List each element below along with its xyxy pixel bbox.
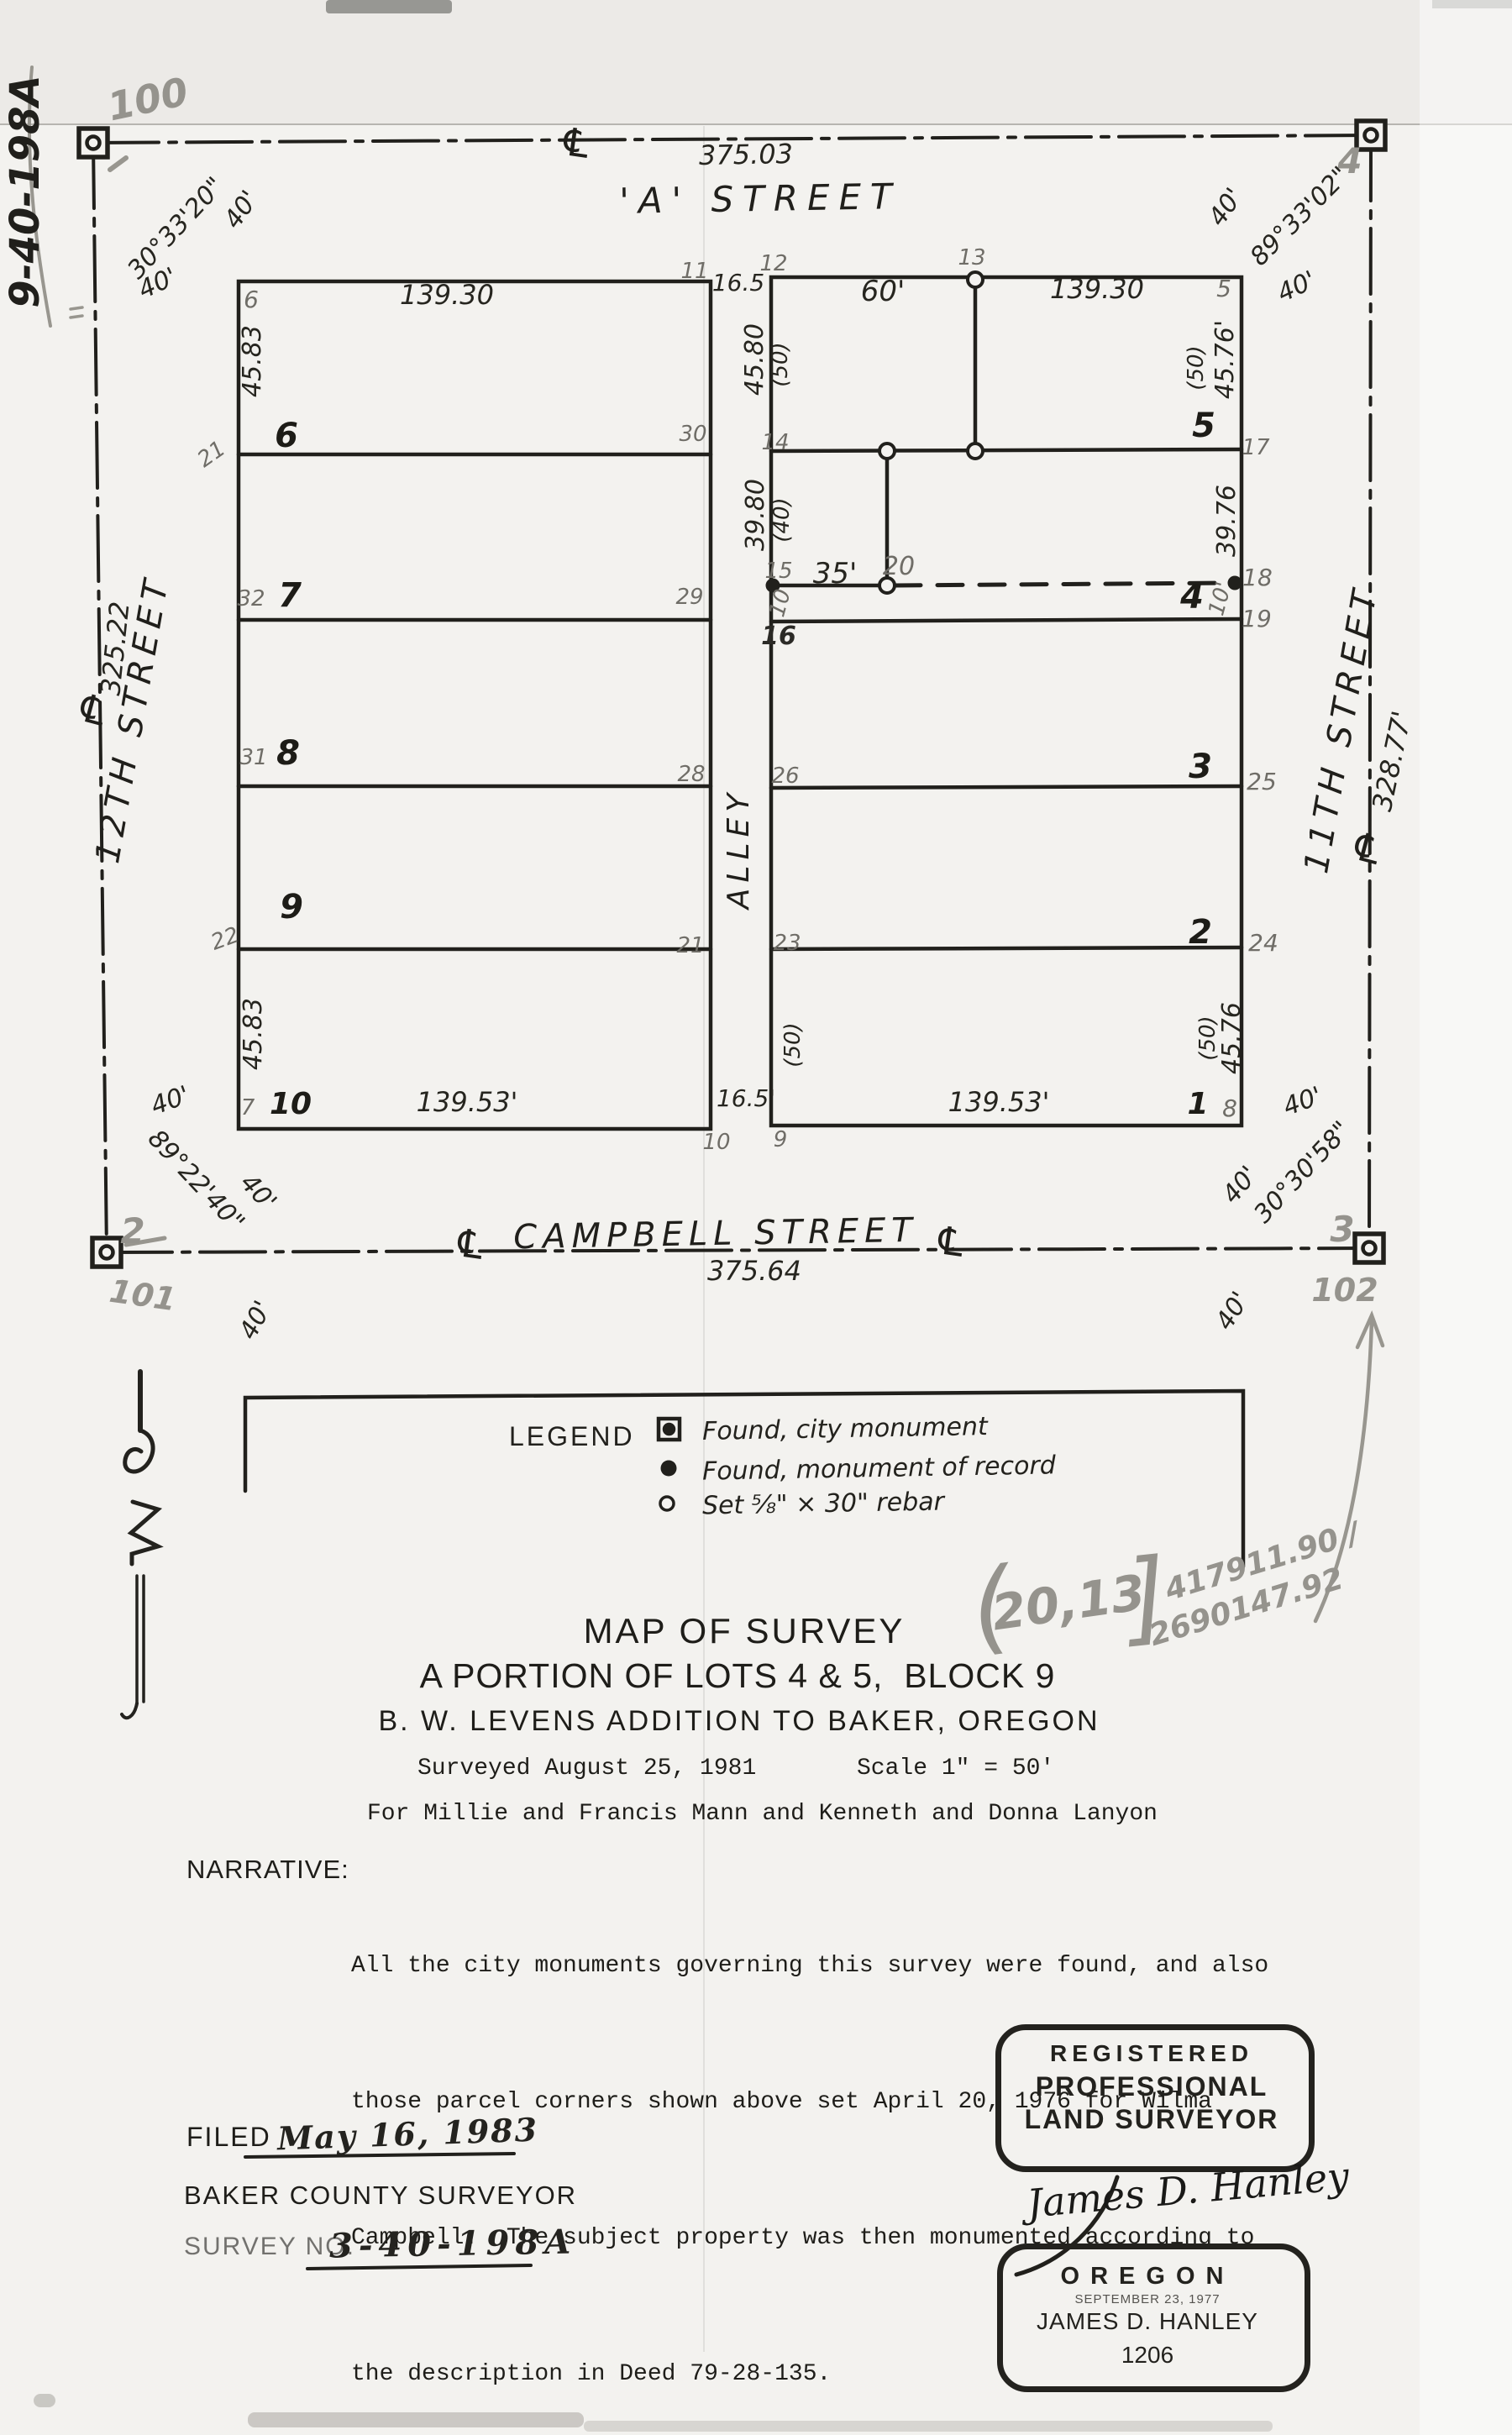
ref-3: 3: [1330, 1212, 1354, 1247]
dim-top-left: 139.30: [400, 281, 494, 308]
map-title: MAP OF SURVEY: [584, 1611, 906, 1651]
set-rebar-points: [879, 272, 983, 593]
client-line: For Millie and Francis Mann and Kenneth …: [367, 1801, 1158, 1827]
stamp-land-surveyor: LAND SURVEYOR: [1025, 2104, 1279, 2135]
stamp-professional: PROFESSIONAL: [1036, 2071, 1268, 2102]
lot-7: 7: [278, 579, 302, 612]
dim-bot-left: 139.53': [417, 1089, 518, 1115]
stamp-oregon: OREGON: [1061, 2263, 1235, 2291]
p10-s: 10: [702, 1131, 730, 1153]
p7: 7: [241, 1097, 255, 1119]
dim-a-street: 375.03: [699, 140, 794, 169]
p32: 32: [237, 588, 265, 610]
p11: 11: [680, 260, 708, 282]
set-rebar-icon: [660, 1497, 674, 1510]
right-block-lines: [771, 277, 1242, 1126]
county-surveyor-line: BAKER COUNTY SURVEYOR: [184, 2180, 577, 2211]
p14: 14: [761, 432, 789, 454]
lot-9: 9: [280, 890, 303, 924]
map-subtitle-2: B. W. LEVENS ADDITION TO BAKER, OREGON: [378, 1705, 1100, 1738]
p16: 16: [761, 624, 796, 649]
p5: 5: [1216, 277, 1231, 301]
narrative-line: All the city monuments governing this su…: [351, 1944, 1268, 1989]
p15: 15: [764, 560, 792, 582]
p13: 13: [958, 247, 985, 269]
lot-5: 5: [1192, 409, 1215, 443]
found-record-icon: [661, 1461, 677, 1477]
p9-s: 9: [774, 1129, 788, 1151]
d-4576-b: 45.76: [1220, 1002, 1245, 1074]
p12: 12: [759, 253, 787, 275]
p18: 18: [1242, 566, 1273, 590]
legend-item-city-monument: Found, city monument: [702, 1412, 988, 1446]
d-50-d: (50): [1197, 1015, 1219, 1060]
stamp-name: JAMES D. HANLEY: [1037, 2308, 1258, 2335]
narrative-heading: NARRATIVE:: [186, 1855, 349, 1885]
d-3980: 39.80: [743, 479, 769, 551]
lot-8: 8: [276, 737, 300, 770]
margin-flourish: [122, 1372, 158, 1718]
ref-2: 2: [120, 1214, 144, 1249]
legend-heading: LEGEND: [509, 1421, 635, 1452]
d-50-b: (50): [1185, 345, 1207, 390]
left-block-lines: [239, 281, 711, 1129]
pencil-corner1-tick: [110, 158, 126, 170]
survey-map-sheet: 1009-40-198A℄375.03'A' STREET30°33'20"40…: [0, 0, 1512, 2435]
cl-bot-w: ℄: [450, 1222, 490, 1265]
legend-item-monument-of-record: Found, monument of record: [702, 1451, 1056, 1486]
lot-3: 3: [1189, 750, 1212, 784]
p21-east: 21: [676, 935, 704, 957]
d-50-a: (50): [769, 342, 791, 386]
d-50-c: (50): [782, 1022, 804, 1067]
p28: 28: [677, 764, 705, 785]
map-scale: Scale 1" = 50': [857, 1755, 1054, 1782]
stamp-registered: REGISTERED: [1050, 2040, 1253, 2067]
p25: 25: [1247, 770, 1277, 794]
margin-file-ref: 9-40-198A: [5, 75, 45, 307]
survey-no-handwritten: 3-40-198A: [329, 2222, 577, 2265]
d-3976: 39.76: [1215, 485, 1240, 557]
dim-alley-top: 16.5: [712, 271, 764, 295]
dim-60: 60': [861, 277, 906, 306]
p26: 26: [771, 765, 799, 787]
d-10-w: 10: [766, 587, 795, 620]
stamp-cert-date: SEPTEMBER 23, 1977: [1074, 2292, 1220, 2306]
lot-4: 4: [1180, 580, 1204, 614]
cl-bot-e: ℄: [931, 1220, 970, 1262]
lot-1: 1: [1187, 1089, 1208, 1120]
p29: 29: [675, 586, 703, 608]
lot-10: 10: [270, 1089, 312, 1120]
alley: ALLEY: [724, 788, 754, 909]
lot-2: 2: [1189, 916, 1212, 949]
d-4583-b: 45.83: [241, 998, 266, 1070]
ref-101: 101: [108, 1275, 178, 1316]
dim-campbell: 375.64: [707, 1257, 801, 1284]
lot-6: 6: [275, 419, 298, 453]
d-4583-t: 45.83: [240, 325, 265, 397]
street-campbell: CAMPBELL STREET: [513, 1214, 918, 1254]
map-subtitle: A PORTION OF LOTS 4 & 5, BLOCK 9: [420, 1656, 1056, 1696]
p31: 31: [239, 747, 267, 769]
dim-top-right: 139.30: [1050, 276, 1144, 302]
p6: 6: [244, 288, 259, 312]
p8: 8: [1222, 1097, 1237, 1120]
p19: 19: [1242, 607, 1272, 631]
street-a: 'A' STREET: [619, 179, 901, 219]
dim-35: 35': [813, 559, 858, 588]
d-4576-t: 45.76': [1213, 320, 1238, 399]
surveyed-date: Surveyed August 25, 1981: [417, 1755, 756, 1782]
p30: 30: [679, 423, 706, 445]
p24: 24: [1248, 931, 1278, 955]
pencil-equals-marks: [71, 307, 82, 317]
legend-item-set-rebar: Set ⅝" × 30" rebar: [702, 1487, 945, 1520]
p17: 17: [1242, 437, 1269, 459]
dim-bot-right: 139.53': [948, 1089, 1050, 1115]
found-city-monument-icon: [659, 1419, 680, 1440]
ref-102: 102: [1311, 1274, 1378, 1306]
stamp-number: 1206: [1121, 2342, 1173, 2369]
dim-alley-bot: 16.5': [717, 1087, 775, 1110]
d-4580: 45.80: [743, 323, 768, 396]
p20: 20: [883, 554, 915, 580]
p23: 23: [773, 932, 801, 954]
cl-top: ℄: [556, 121, 596, 164]
filed-label: FILED: [186, 2122, 271, 2153]
d-40p: (40): [771, 497, 793, 542]
